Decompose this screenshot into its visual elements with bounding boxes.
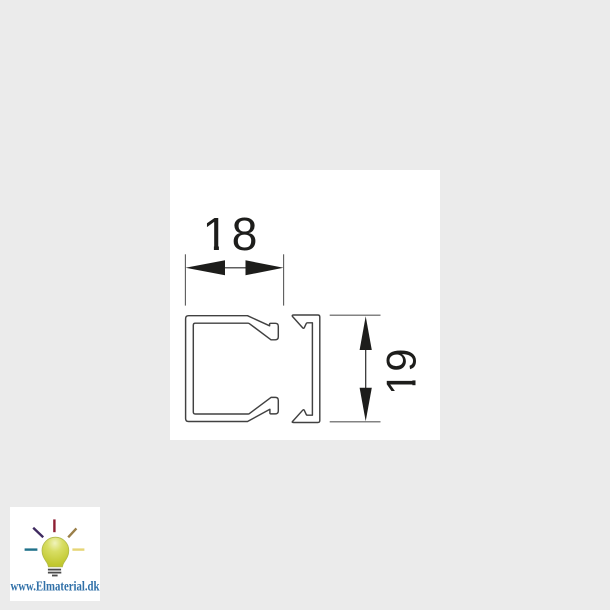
svg-text:www.Elmaterial.dk: www.Elmaterial.dk (11, 579, 100, 594)
svg-text:18: 18 (203, 208, 261, 260)
svg-text:19: 19 (378, 349, 425, 395)
